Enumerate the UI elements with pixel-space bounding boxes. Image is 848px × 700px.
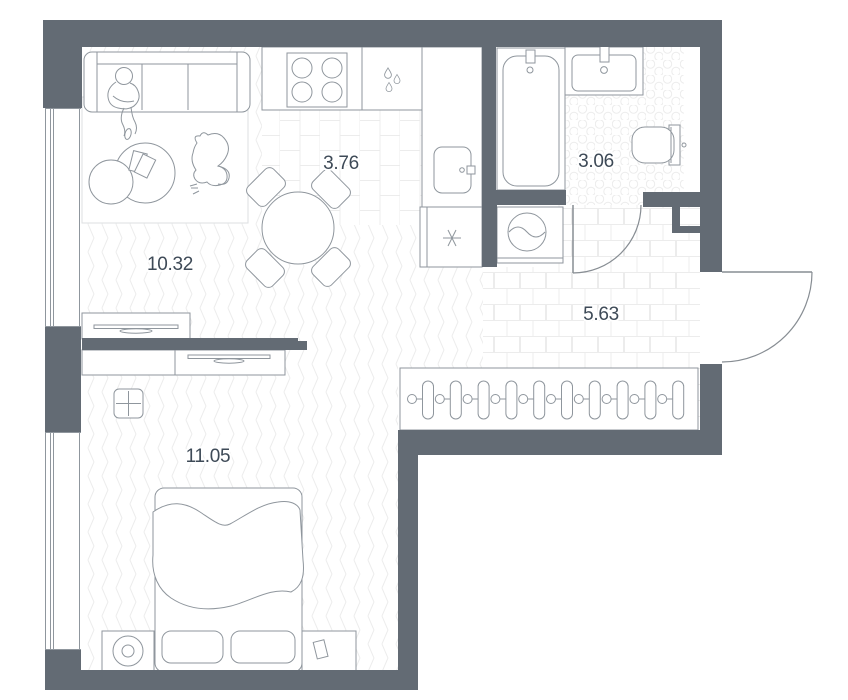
bed xyxy=(153,488,304,672)
wall-bedroom-right xyxy=(398,452,418,690)
nightstand-right xyxy=(302,631,356,671)
side-table xyxy=(89,160,133,204)
door-swing-arc xyxy=(722,272,812,362)
dining-table xyxy=(262,192,334,264)
pillow xyxy=(231,631,295,663)
window-living xyxy=(45,108,81,327)
wall-shaft-left xyxy=(672,207,680,233)
fridge xyxy=(420,207,482,267)
wall-bathroom-bottom-right xyxy=(643,192,700,207)
tv-console-living xyxy=(82,313,190,339)
area-label-living: 10.32 xyxy=(147,254,193,275)
floor-plan-page: 10.32 3.76 3.06 5.63 11.05 xyxy=(0,0,848,700)
wardrobe-rack xyxy=(400,368,698,430)
toilet-icon xyxy=(632,125,686,165)
area-label-bathroom: 3.06 xyxy=(578,151,614,172)
wall-top xyxy=(43,20,722,47)
wall-shaft-bottom xyxy=(680,226,700,233)
wall-bathroom-bottom-left xyxy=(482,190,566,205)
wall-bottom xyxy=(45,670,418,690)
window-bedroom xyxy=(45,432,81,650)
area-label-hallway: 5.63 xyxy=(583,304,619,325)
washbasin-icon xyxy=(565,46,643,95)
nightstand-left xyxy=(102,631,154,671)
kitchen-sink-unit xyxy=(434,147,475,193)
door-entrance xyxy=(722,272,812,362)
floor-plan: 10.32 3.76 3.06 5.63 11.05 xyxy=(0,0,848,700)
wall-bathroom-left xyxy=(482,47,496,205)
wall-left-top xyxy=(43,20,82,108)
washing-machine-icon xyxy=(497,207,563,263)
partition-end xyxy=(298,341,307,350)
electric-panel-icon xyxy=(114,389,143,418)
partition-media-wall xyxy=(82,338,298,350)
stove-burners-icon xyxy=(287,53,347,107)
wall-right-lower xyxy=(700,364,722,433)
bathtub-icon xyxy=(497,48,565,190)
wall-left-middle xyxy=(45,327,81,432)
sofa xyxy=(84,52,250,112)
wall-hallway-bottom xyxy=(398,430,722,455)
tv-console-bedroom xyxy=(82,350,285,375)
area-label-kitchen: 3.76 xyxy=(323,153,359,174)
area-label-bedroom: 11.05 xyxy=(186,446,231,467)
pillow xyxy=(162,631,223,663)
wall-niche xyxy=(482,205,497,267)
wall-right-upper xyxy=(700,20,722,272)
